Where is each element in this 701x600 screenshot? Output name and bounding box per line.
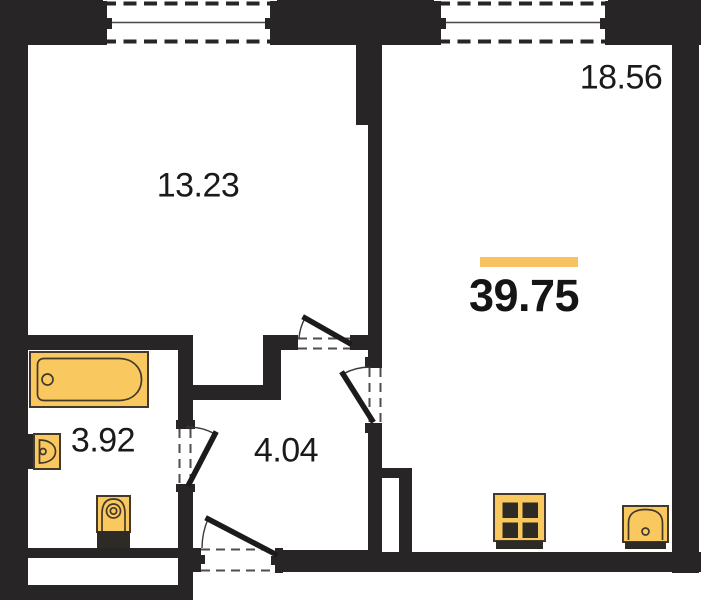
stove-icon <box>494 494 545 549</box>
living-room-door-icon <box>343 367 381 423</box>
room-area-label: 13.23 <box>157 167 240 206</box>
hallway-wall-top-right <box>350 335 368 350</box>
entrance-jamb-left <box>193 548 201 572</box>
total-area-label: 39.75 <box>469 270 579 322</box>
room-area-label: 3.92 <box>71 422 135 461</box>
wall-bottom-left <box>0 585 193 600</box>
wall-top-middle <box>277 0 434 45</box>
floorplan: 13.23 18.56 3.92 4.04 39.75 <box>0 0 701 600</box>
bathroom-wall-right-lower <box>178 492 193 585</box>
entrance-jamb-nub <box>201 555 205 564</box>
wall-bottom-entrance <box>283 550 382 572</box>
room-area-label: 4.04 <box>254 432 318 471</box>
wall-right <box>672 0 699 573</box>
bathroom-door-icon <box>180 427 216 484</box>
wall-middle <box>368 125 382 357</box>
bathtub-icon <box>30 352 148 407</box>
washbasin-icon <box>34 434 60 469</box>
bathroom-wall-top <box>28 335 192 350</box>
door-jamb <box>365 357 382 368</box>
room-door-icon <box>298 318 350 349</box>
wall-bottom-right <box>412 552 701 572</box>
hallway-wall-top-left <box>263 335 298 350</box>
bathroom-wall-bottom <box>28 548 193 558</box>
total-area-bar <box>480 257 578 267</box>
window-icon-right <box>434 1 612 45</box>
window-icon-left <box>100 1 277 45</box>
wall-top-left <box>0 0 103 45</box>
room-area-label: 18.56 <box>580 59 663 98</box>
bathroom-wall-right-upper <box>178 335 193 420</box>
toilet-icon <box>97 496 130 548</box>
door-jamb <box>365 423 382 433</box>
alcove-wall-right <box>263 350 281 400</box>
duct-shaft <box>382 478 399 552</box>
entrance-door-icon <box>201 519 275 571</box>
wall-left <box>0 0 28 600</box>
kitchen-sink-icon <box>623 506 668 549</box>
entrance-jamb-nub <box>271 556 275 565</box>
wall-middle-upper <box>356 45 382 125</box>
